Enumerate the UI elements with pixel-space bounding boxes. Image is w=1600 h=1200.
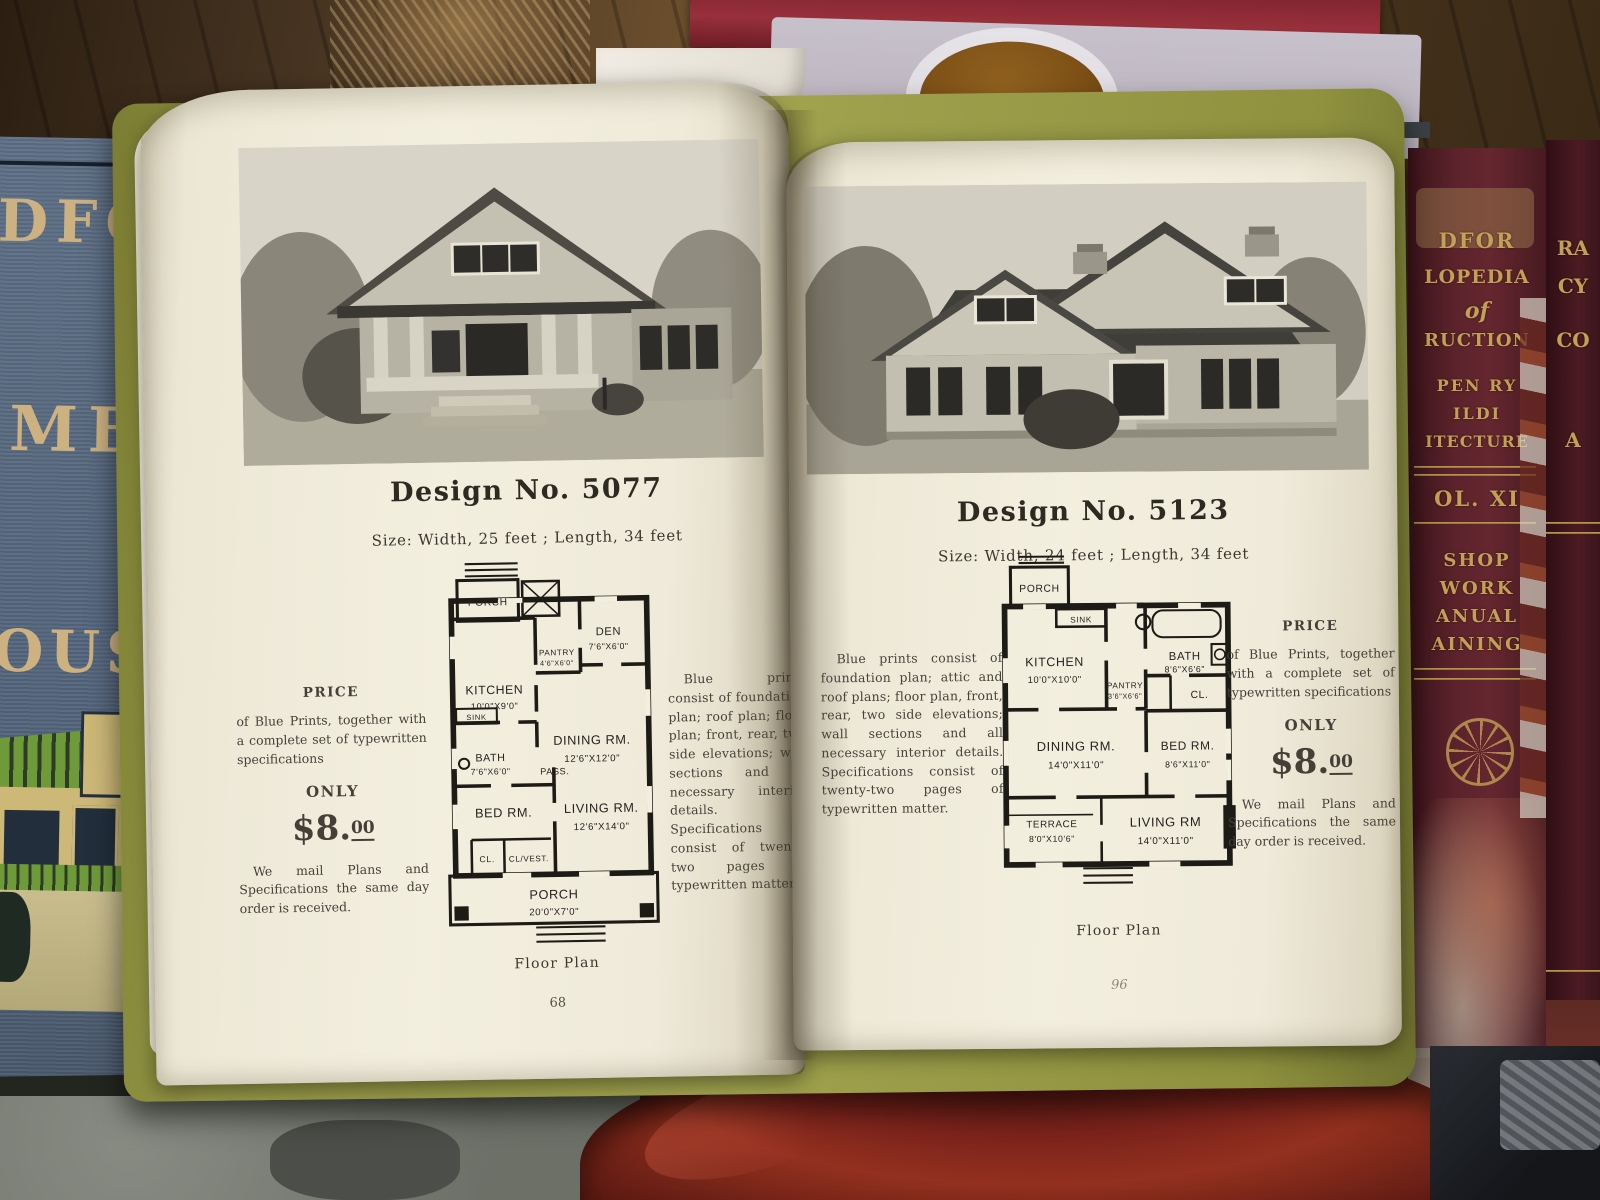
- spine-text: LOPEDIA: [1408, 266, 1546, 288]
- room-dims-living: 12'6"X14'0": [574, 821, 630, 833]
- room-dims-kitchen: 10'0"X9'0": [471, 701, 519, 712]
- page-number: 68: [445, 995, 670, 1012]
- room-label-bed: BED RM.: [1161, 738, 1215, 752]
- price-only: ONLY: [1227, 717, 1395, 733]
- price-amount: $8.00: [1227, 744, 1395, 779]
- room-dims-pantry: 4'6"X6'0": [540, 659, 574, 668]
- spine-gold-rule: [1414, 474, 1536, 476]
- room-label-clvest: CL/VEST.: [509, 854, 549, 864]
- photo-of-open-plan-book: DFO ME OUS ND HOW UILD T DFOR LOPEDIA of…: [0, 0, 1600, 1200]
- room-dims-dining: 14'0"X11'0": [1048, 760, 1104, 771]
- room-label-bath: BATH: [1169, 651, 1201, 663]
- price-only: ONLY: [238, 782, 428, 800]
- spine-wheel-emblem-icon: [1446, 718, 1514, 786]
- cyclopedia-spine: DFOR LOPEDIA of RUCTION PEN RY ILDI ITEC…: [1408, 148, 1546, 1200]
- spine-text: A: [1546, 428, 1600, 452]
- price-note: We mail Plans and Specifications the sam…: [1228, 794, 1396, 852]
- price-block: PRICE of Blue Prints, together with a co…: [1226, 619, 1396, 851]
- price-cents: 00: [351, 817, 375, 840]
- right-page-content: Design No. 5123 Size: Width, 24 feet ; L…: [786, 137, 1402, 1050]
- price-heading: PRICE: [236, 685, 426, 702]
- spine-torn-edge: [1520, 298, 1546, 818]
- floor-plan-caption: Floor Plan: [995, 923, 1243, 939]
- room-label-cl: CL.: [1191, 690, 1209, 701]
- room-label-kitchen: KITCHEN: [1025, 655, 1084, 670]
- room-label-den: DEN: [596, 626, 622, 638]
- room-label-porch-bottom: PORCH: [529, 886, 578, 902]
- companion-spine: RA CY CO A: [1546, 140, 1600, 1200]
- room-label-living: LIVING RM: [1130, 814, 1202, 830]
- spine-gold-rule: [1414, 522, 1536, 524]
- room-label-dining: DINING RM.: [1037, 738, 1116, 754]
- book-gutter-shadow: [762, 110, 818, 1060]
- spine-gold-rule: [1546, 970, 1600, 972]
- left-page: Design No. 5077 Size: Width, 25 feet ; L…: [139, 80, 804, 1085]
- room-label-porch-top: PORCH: [468, 597, 508, 609]
- spine-text: DFOR: [1408, 228, 1546, 253]
- spine-text: RA: [1546, 236, 1600, 260]
- floor-plan-caption: Floor Plan: [445, 955, 670, 973]
- house-illustration-5123: [804, 182, 1368, 475]
- spine-text: CO: [1546, 328, 1600, 352]
- room-label-pantry: PANTRY: [539, 648, 575, 658]
- price-dollars: $8.: [291, 808, 351, 849]
- floor-dark-patch: [270, 1120, 460, 1200]
- design-title: Design No. 5077: [256, 472, 796, 508]
- room-label-terrace: TERRACE: [1026, 819, 1077, 830]
- right-page: Design No. 5123 Size: Width, 24 feet ; L…: [786, 137, 1402, 1050]
- room-dims-living: 14'0"X11'0": [1138, 836, 1194, 847]
- room-label-dining: DINING RM.: [553, 732, 631, 748]
- house-illustration-5077: [238, 139, 763, 466]
- room-dims-bed: 8'6"X11'0": [1165, 759, 1210, 769]
- price-block: PRICE of Blue Prints, together with a co…: [236, 685, 430, 919]
- floor-plan-5123: PORCH SINK KITCHEN 10'0"X10'0" PANTRY 3'…: [992, 553, 1243, 917]
- room-dims-dining: 12'6"X12'0": [564, 753, 620, 765]
- price-dollars: $8.: [1270, 742, 1330, 783]
- spine-wear: [1408, 798, 1546, 1058]
- price-note: We mail Plans and Specifications the sam…: [239, 859, 430, 919]
- price-heading: PRICE: [1226, 619, 1394, 634]
- price-body: of Blue Prints, together with a complete…: [236, 708, 427, 769]
- room-dims-den: 7'6"X6'0": [589, 641, 629, 652]
- room-dims-pantry: 3'6"X6'6": [1108, 691, 1142, 700]
- room-label-sink: SINK: [1070, 615, 1092, 624]
- spine-gold-rule: [1414, 466, 1536, 468]
- price-body: of Blue Prints, together with a complete…: [1226, 643, 1395, 703]
- floor-plan-5077: PORCH DEN 7'6"X6'0" PANTRY 4'6"X6'0" KIT…: [436, 557, 668, 953]
- room-label-pass: PASS.: [540, 766, 570, 777]
- price-amount: $8.00: [238, 809, 429, 846]
- spine-gold-rule: [1414, 668, 1536, 670]
- room-label-bed: BED RM.: [475, 805, 533, 821]
- room-dims-terrace: 8'0"X10'6": [1029, 834, 1075, 844]
- room-label-cl: CL.: [479, 854, 494, 864]
- room-label-porch: PORCH: [1019, 584, 1060, 595]
- page-mark: 96: [995, 977, 1243, 994]
- room-label-living: LIVING RM.: [564, 800, 639, 816]
- gray-object-right: [1500, 1060, 1600, 1150]
- room-dims-porch-bottom: 20'0"X7'0": [529, 907, 579, 919]
- spine-gold-rule: [1414, 678, 1536, 680]
- spine-text: CY: [1546, 274, 1600, 298]
- room-dims-bath: 7'6"X6'0": [471, 766, 511, 777]
- spine-gold-rule: [1546, 522, 1600, 524]
- design-title: Design No. 5123: [789, 495, 1397, 527]
- cover-house-illustration: [0, 691, 137, 1089]
- design-size: Size: Width, 25 feet ; Length, 34 feet: [257, 526, 797, 550]
- room-label-sink: SINK: [466, 713, 486, 722]
- room-label-pantry: PANTRY: [1107, 681, 1143, 690]
- price-cents: 00: [1329, 751, 1353, 774]
- spine-gold-rule: [1546, 532, 1600, 534]
- room-dims-bath: 8'6"X6'6": [1165, 664, 1206, 674]
- room-dims-kitchen: 10'0"X10'0": [1028, 674, 1082, 684]
- room-label-kitchen: KITCHEN: [465, 683, 523, 698]
- room-label-bath: BATH: [475, 752, 505, 765]
